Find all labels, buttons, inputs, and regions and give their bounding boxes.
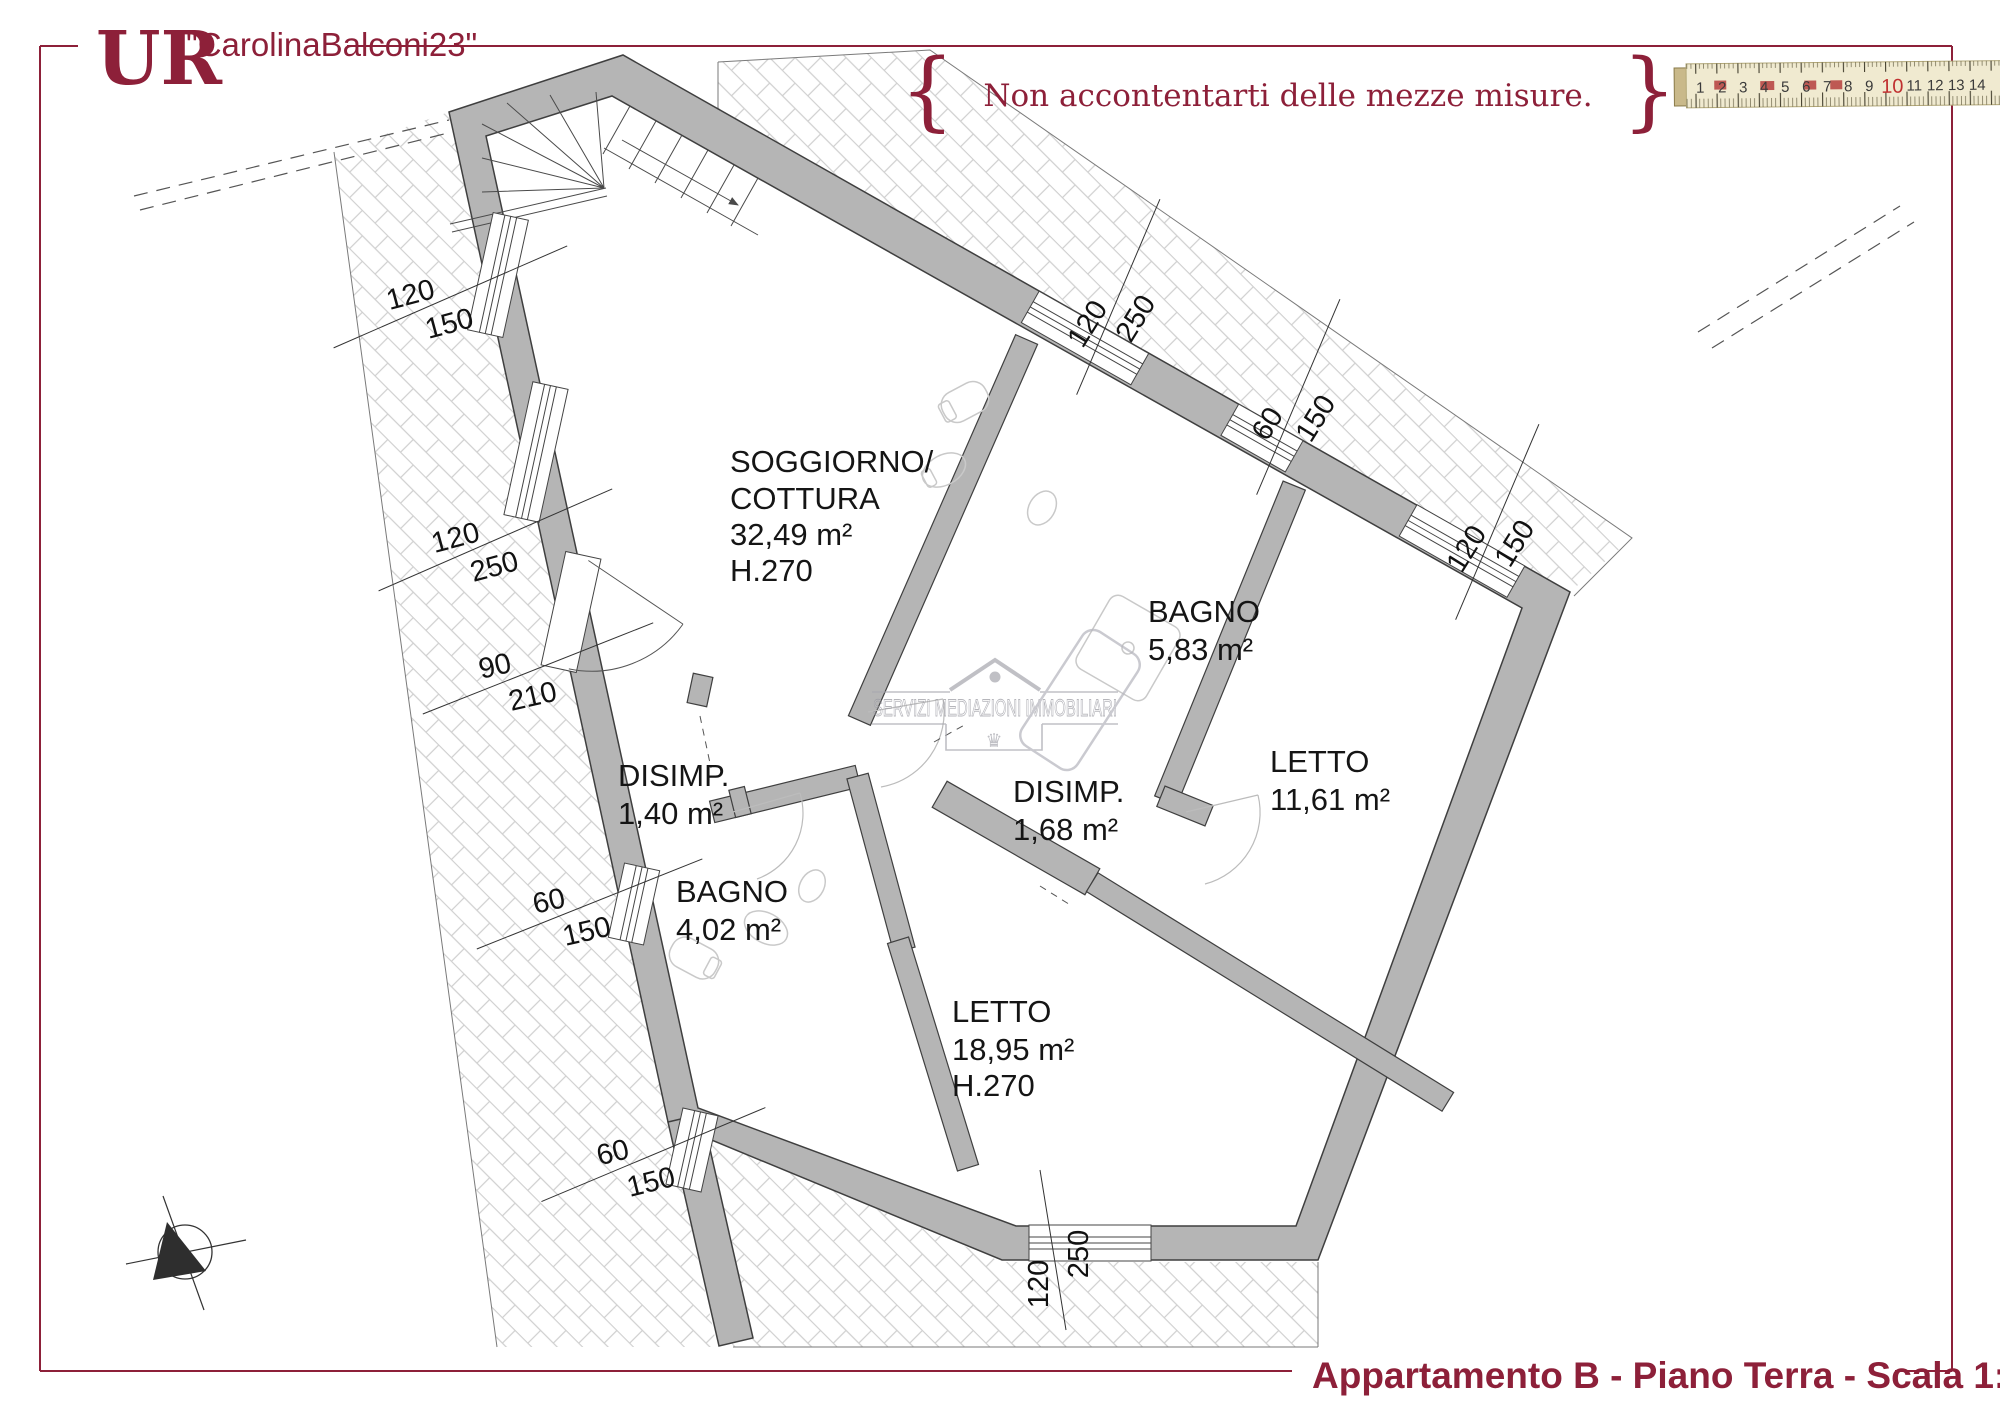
svg-text:2: 2 (1718, 79, 1727, 96)
svg-text:250: 250 (1063, 1230, 1095, 1278)
svg-text:3: 3 (1739, 79, 1748, 96)
svg-text:18,95 m²: 18,95 m² (952, 1032, 1074, 1067)
tagline-brace-left: { (900, 41, 955, 141)
svg-text:COTTURA: COTTURA (730, 481, 880, 516)
room-label-bagno2: BAGNO 4,02 m² (676, 874, 788, 947)
room-label-disimp2: DISIMP. 1,68 m² (1013, 774, 1124, 847)
washbasin-icon (793, 865, 830, 906)
ruler-brand-mark (1830, 80, 1842, 89)
north-arrow-pointer (153, 1222, 206, 1280)
svg-text:4: 4 (1760, 79, 1769, 96)
washbasin-icon (1022, 486, 1063, 530)
tagline: Non accontentarti delle mezze misure. (983, 78, 1592, 114)
room-label-disimp1: DISIMP. 1,40 m² (618, 758, 729, 831)
floor-plan-page: 120 150 120 250 90 210 60 150 60 150 120… (0, 0, 2000, 1414)
watermark-crown-icon: ♛ (985, 731, 1002, 752)
svg-text:5,83 m²: 5,83 m² (1148, 632, 1253, 667)
svg-text:LETTO: LETTO (952, 994, 1051, 1029)
svg-text:13: 13 (1948, 77, 1965, 94)
svg-text:H.270: H.270 (730, 553, 813, 588)
listing-code: "CarolinaBalconi23" (186, 26, 477, 63)
svg-text:1,68 m²: 1,68 m² (1013, 812, 1118, 847)
svg-text:SOGGIORNO/: SOGGIORNO/ (730, 444, 934, 479)
watermark-dot-icon (990, 672, 1001, 683)
svg-text:1: 1 (1696, 80, 1705, 97)
svg-text:DISIMP.: DISIMP. (1013, 774, 1124, 809)
svg-text:6: 6 (1802, 79, 1811, 96)
svg-text:7: 7 (1823, 78, 1832, 95)
svg-text:10: 10 (1881, 76, 1903, 98)
svg-text:4,02 m²: 4,02 m² (676, 912, 781, 947)
svg-text:H.270: H.270 (952, 1068, 1035, 1103)
folding-ruler: 1 2 3 4 5 6 7 8 9 10 11 12 13 14 (1674, 61, 2000, 108)
agency-watermark: SERVIZI MEDIAZIONI IMMOBILIARI ♛ (872, 625, 1145, 775)
floor-plan-canvas: 120 150 120 250 90 210 60 150 60 150 120… (0, 0, 2000, 1414)
svg-text:32,49 m²: 32,49 m² (730, 517, 852, 552)
svg-text:5: 5 (1781, 79, 1790, 96)
north-arrow (126, 1196, 246, 1310)
svg-text:8: 8 (1844, 78, 1853, 95)
watermark-text: SERVIZI MEDIAZIONI IMMOBILIARI (873, 695, 1117, 722)
tagline-brace-right: } (1622, 41, 1677, 141)
svg-text:LETTO: LETTO (1270, 744, 1369, 779)
plan-title: Appartamento B - Piano Terra - Scala 1:5… (1312, 1355, 2000, 1396)
svg-text:1,40 m²: 1,40 m² (618, 796, 723, 831)
room-label-letto1: LETTO 11,61 m² (1270, 744, 1390, 817)
svg-text:12: 12 (1927, 77, 1944, 94)
svg-text:9: 9 (1865, 78, 1874, 95)
room-label-soggiorno: SOGGIORNO/ COTTURA 32,49 m² H.270 (730, 444, 934, 588)
svg-text:BAGNO: BAGNO (676, 874, 788, 909)
svg-text:11: 11 (1906, 77, 1922, 94)
svg-text:120: 120 (1023, 1260, 1055, 1308)
svg-text:BAGNO: BAGNO (1148, 594, 1260, 629)
svg-text:14: 14 (1969, 77, 1986, 94)
svg-text:DISIMP.: DISIMP. (618, 758, 729, 793)
room-label-letto2: LETTO 18,95 m² H.270 (952, 994, 1074, 1103)
svg-text:11,61 m²: 11,61 m² (1270, 782, 1390, 817)
